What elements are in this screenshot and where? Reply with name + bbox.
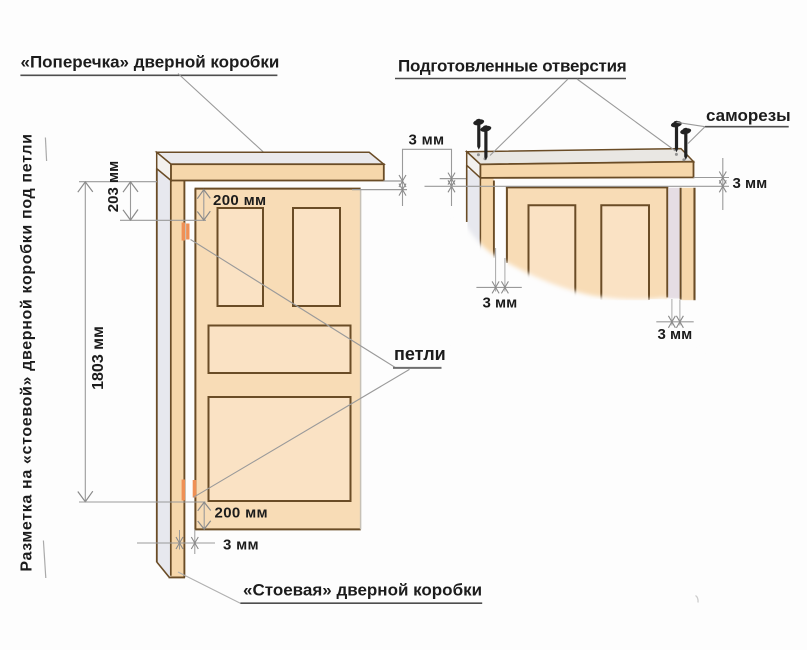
svg-text:саморезы: саморезы [706,106,791,125]
svg-text:«Стоевая» дверной коробки: «Стоевая» дверной коробки [243,581,482,600]
svg-text:3 мм: 3 мм [409,132,445,149]
svg-text:1803 мм: 1803 мм [90,326,107,390]
svg-text:«Поперечка» дверной коробки: «Поперечка» дверной коробки [21,53,280,72]
svg-text:200 мм: 200 мм [213,192,267,209]
svg-text:3 мм: 3 мм [733,175,768,192]
svg-text:петли: петли [394,344,446,364]
svg-text:203 мм: 203 мм [105,161,122,212]
svg-text:Разметка на «стоевой» дверной: Разметка на «стоевой» дверной коробки по… [19,133,36,571]
svg-text:3 мм: 3 мм [483,295,518,312]
svg-text:3 мм: 3 мм [223,537,259,554]
svg-text:200 мм: 200 мм [215,505,269,522]
svg-text:Подготовленные отверстия: Подготовленные отверстия [398,57,626,76]
svg-text:3 мм: 3 мм [658,326,693,343]
